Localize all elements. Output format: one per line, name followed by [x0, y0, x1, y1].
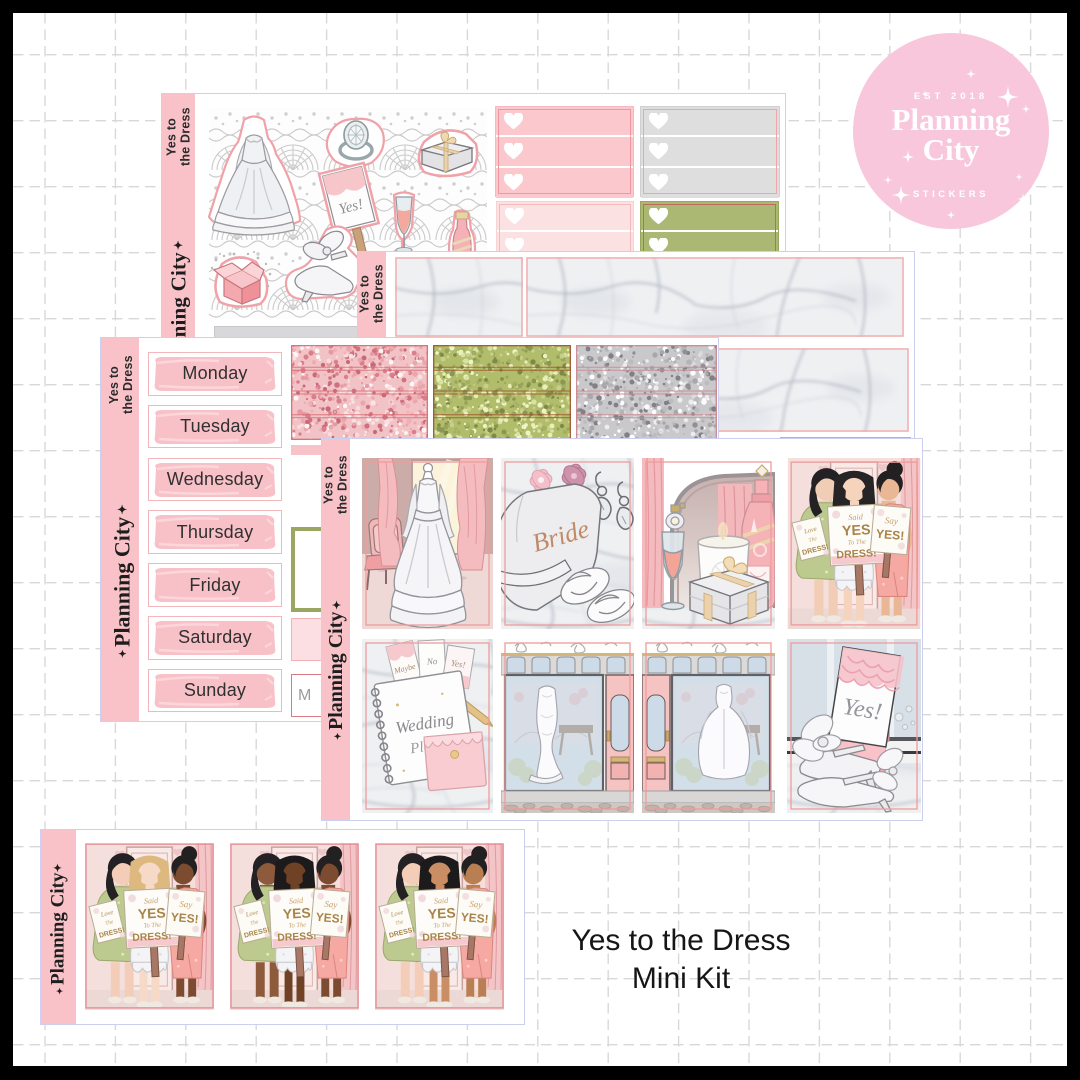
svg-text:No: No [426, 656, 439, 667]
